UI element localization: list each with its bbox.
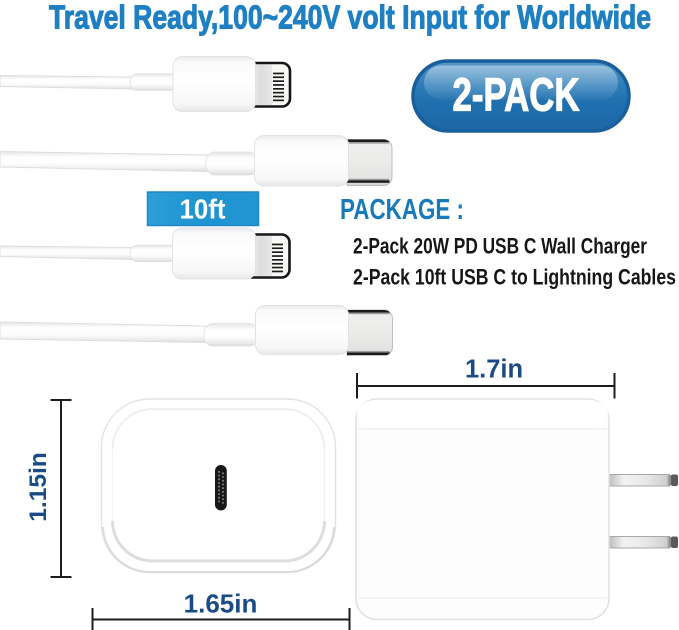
svg-text:PACKAGE :: PACKAGE :: [340, 194, 464, 226]
svg-text:2-PACK: 2-PACK: [453, 69, 580, 121]
svg-text:10ft: 10ft: [180, 194, 226, 225]
svg-text:1.7in: 1.7in: [465, 356, 523, 384]
svg-text:1.15in: 1.15in: [25, 452, 52, 521]
svg-text:1.65in: 1.65in: [184, 589, 258, 619]
svg-text:Travel Ready,100~240V volt Inp: Travel Ready,100~240V volt Input for Wor…: [49, 0, 651, 37]
svg-text:2-Pack 10ft USB C to Lightning: 2-Pack 10ft USB C to Lightning Cables: [353, 265, 676, 290]
svg-text:2-Pack 20W PD USB C Wall Charg: 2-Pack 20W PD USB C Wall Charger: [353, 234, 647, 259]
